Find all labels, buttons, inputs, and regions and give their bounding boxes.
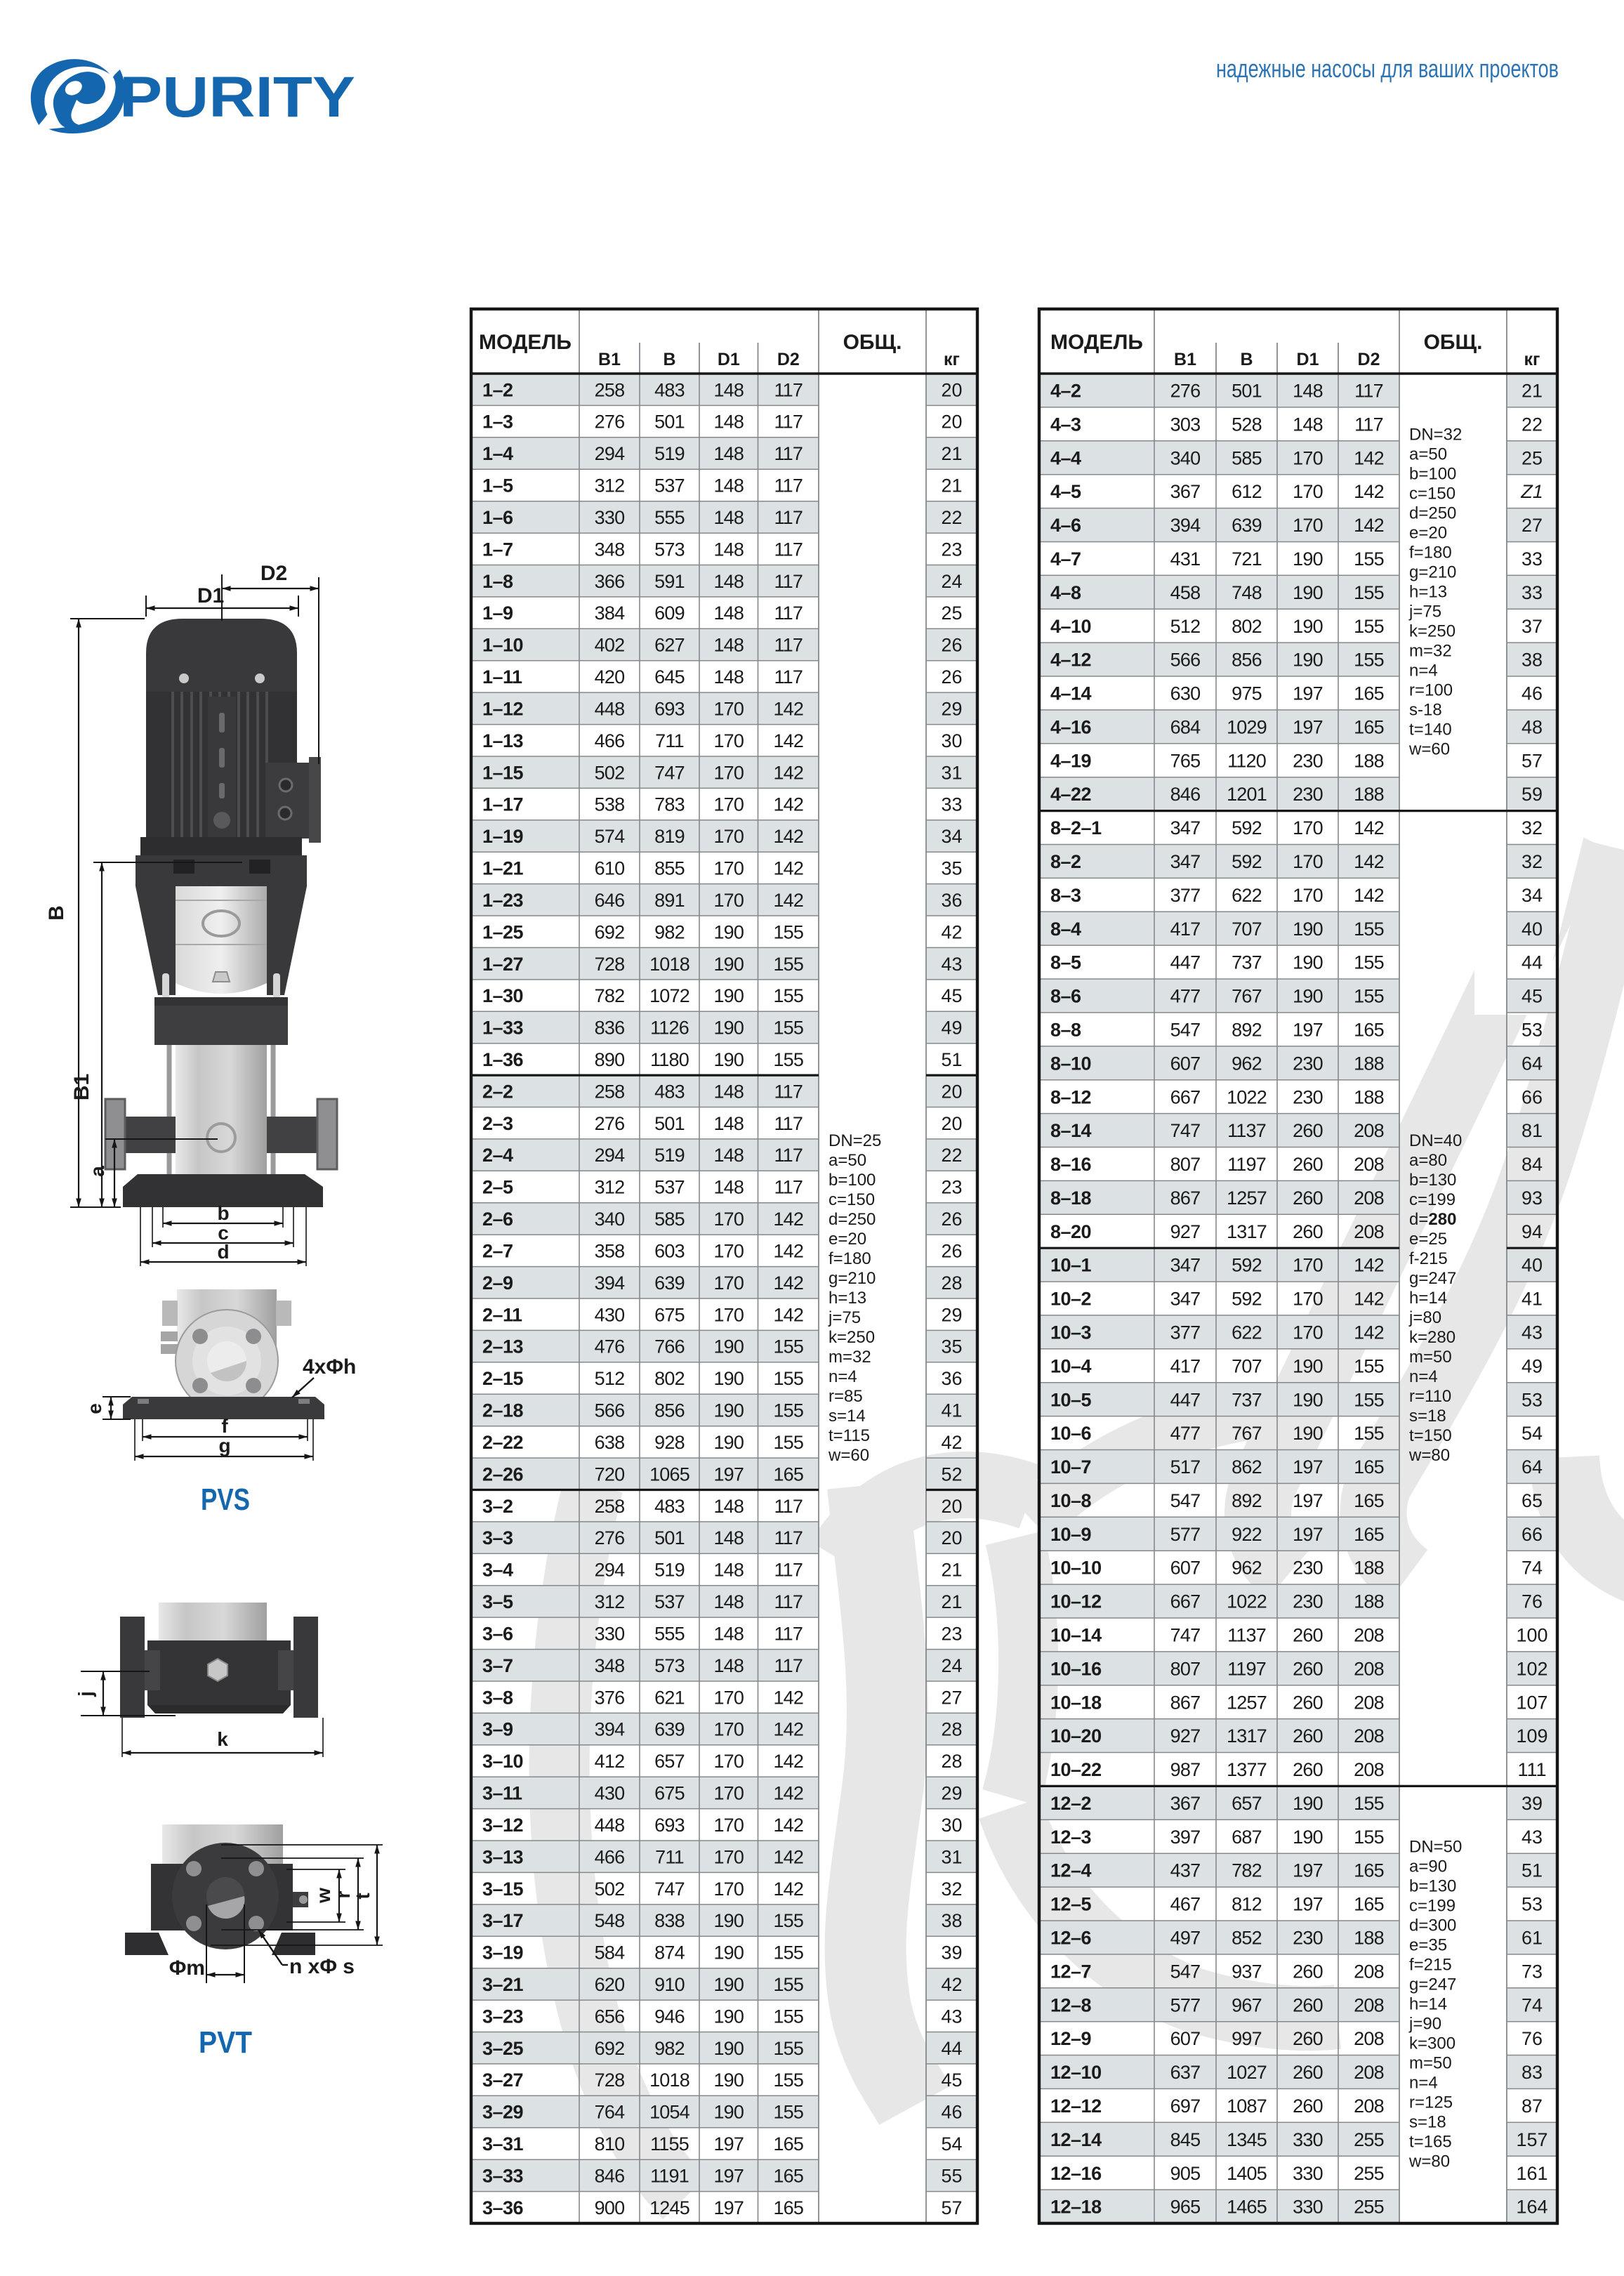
svg-text:t: t <box>352 1893 374 1899</box>
svg-text:10–6: 10–6 <box>1050 1423 1092 1444</box>
svg-text:n=4: n=4 <box>1409 1367 1438 1386</box>
svg-text:148: 148 <box>1293 381 1323 402</box>
svg-text:142: 142 <box>1354 1322 1384 1343</box>
svg-text:764: 764 <box>595 2102 625 2123</box>
svg-text:707: 707 <box>1232 1355 1262 1376</box>
svg-text:117: 117 <box>774 1527 803 1548</box>
svg-text:890: 890 <box>595 1049 625 1070</box>
svg-text:d: d <box>217 1241 229 1263</box>
svg-text:22: 22 <box>1521 414 1543 435</box>
svg-text:190: 190 <box>713 2038 744 2059</box>
svg-text:j=75: j=75 <box>1408 602 1441 621</box>
svg-text:a: a <box>86 1166 108 1177</box>
svg-text:B: B <box>663 350 675 369</box>
svg-text:2–18: 2–18 <box>482 1400 524 1421</box>
svg-text:142: 142 <box>773 890 803 911</box>
svg-text:12–14: 12–14 <box>1050 2129 1102 2150</box>
svg-text:412: 412 <box>595 1751 625 1772</box>
svg-text:190: 190 <box>713 1432 744 1453</box>
svg-text:PVT: PVT <box>199 2025 252 2060</box>
svg-text:1405: 1405 <box>1227 2163 1267 2184</box>
svg-text:148: 148 <box>713 1527 744 1548</box>
svg-text:8–12: 8–12 <box>1050 1086 1091 1107</box>
svg-text:657: 657 <box>654 1751 685 1772</box>
svg-text:c=199: c=199 <box>1409 1897 1455 1916</box>
svg-text:3–2: 3–2 <box>482 1496 513 1517</box>
svg-text:27: 27 <box>1521 515 1543 536</box>
svg-text:807: 807 <box>1170 1154 1201 1175</box>
svg-text:547: 547 <box>1170 1961 1201 1982</box>
svg-text:190: 190 <box>713 1400 744 1421</box>
svg-text:922: 922 <box>1232 1524 1262 1545</box>
svg-text:155: 155 <box>1354 548 1384 570</box>
svg-text:846: 846 <box>1170 784 1201 805</box>
svg-text:66: 66 <box>1521 1524 1543 1545</box>
svg-text:D2: D2 <box>777 350 800 369</box>
svg-text:190: 190 <box>713 1018 744 1039</box>
svg-text:1–27: 1–27 <box>482 954 523 975</box>
svg-text:737: 737 <box>1232 952 1262 973</box>
svg-text:170: 170 <box>713 1783 744 1804</box>
svg-text:592: 592 <box>1232 1255 1262 1276</box>
svg-text:892: 892 <box>1232 1490 1262 1511</box>
svg-text:f-215: f-215 <box>1409 1249 1448 1268</box>
svg-text:1–23: 1–23 <box>482 890 524 911</box>
svg-text:483: 483 <box>654 379 685 400</box>
svg-text:937: 937 <box>1232 1961 1262 1982</box>
svg-text:DN=40: DN=40 <box>1409 1131 1462 1150</box>
svg-text:31: 31 <box>941 1846 962 1867</box>
svg-text:728: 728 <box>595 954 625 975</box>
svg-text:142: 142 <box>773 794 803 815</box>
svg-text:627: 627 <box>654 635 685 656</box>
svg-text:155: 155 <box>1354 1827 1384 1848</box>
svg-text:208: 208 <box>1354 2096 1384 2117</box>
svg-text:12–3: 12–3 <box>1050 1827 1092 1848</box>
svg-text:b=100: b=100 <box>1409 464 1456 483</box>
svg-text:2–4: 2–4 <box>482 1145 513 1166</box>
svg-text:148: 148 <box>713 1113 744 1134</box>
svg-text:142: 142 <box>773 698 803 719</box>
svg-text:1–11: 1–11 <box>482 666 522 688</box>
svg-text:26: 26 <box>941 635 962 656</box>
svg-text:155: 155 <box>773 954 803 975</box>
svg-text:294: 294 <box>595 1145 625 1166</box>
svg-text:862: 862 <box>1232 1456 1262 1478</box>
svg-text:10–2: 10–2 <box>1050 1289 1091 1310</box>
svg-text:347: 347 <box>1170 817 1201 838</box>
svg-text:190: 190 <box>713 1368 744 1389</box>
svg-text:165: 165 <box>1354 1456 1384 1478</box>
svg-text:330: 330 <box>1293 2163 1323 2184</box>
svg-text:165: 165 <box>1354 717 1384 738</box>
svg-text:260: 260 <box>1293 1994 1323 2015</box>
svg-text:k: k <box>217 1728 228 1750</box>
svg-text:f=215: f=215 <box>1409 1956 1452 1975</box>
svg-text:3–6: 3–6 <box>482 1623 513 1644</box>
svg-text:782: 782 <box>595 985 625 1006</box>
svg-text:4xΦh: 4xΦh <box>303 1355 356 1379</box>
svg-text:574: 574 <box>595 826 625 847</box>
svg-text:a=90: a=90 <box>1409 1857 1447 1876</box>
svg-text:45: 45 <box>941 985 962 1006</box>
svg-text:802: 802 <box>654 1368 685 1389</box>
svg-text:10–4: 10–4 <box>1050 1355 1092 1376</box>
svg-text:4–3: 4–3 <box>1050 414 1081 435</box>
svg-text:607: 607 <box>1170 1053 1201 1074</box>
svg-text:g: g <box>218 1435 230 1456</box>
svg-text:477: 477 <box>1170 1423 1201 1444</box>
svg-text:21: 21 <box>1521 381 1543 402</box>
svg-text:358: 358 <box>595 1241 625 1262</box>
svg-text:437: 437 <box>1170 1860 1201 1881</box>
svg-text:512: 512 <box>1170 616 1201 637</box>
svg-text:2–6: 2–6 <box>482 1209 513 1230</box>
svg-text:51: 51 <box>1521 1860 1543 1881</box>
svg-text:148: 148 <box>713 1496 744 1517</box>
svg-text:46: 46 <box>1521 683 1543 704</box>
svg-text:584: 584 <box>595 1942 625 1963</box>
svg-text:10–18: 10–18 <box>1050 1692 1102 1713</box>
svg-text:208: 208 <box>1354 1188 1384 1209</box>
svg-text:997: 997 <box>1232 2028 1262 2049</box>
svg-text:946: 946 <box>654 2006 685 2027</box>
svg-text:927: 927 <box>1170 1725 1201 1747</box>
svg-text:48: 48 <box>1521 717 1543 738</box>
svg-text:466: 466 <box>595 730 625 751</box>
svg-text:3–19: 3–19 <box>482 1942 524 1963</box>
svg-text:3–21: 3–21 <box>482 1974 524 1995</box>
svg-text:766: 766 <box>654 1336 685 1357</box>
svg-text:4–2: 4–2 <box>1050 381 1081 402</box>
svg-text:639: 639 <box>654 1719 685 1740</box>
svg-text:53: 53 <box>1521 1020 1543 1041</box>
svg-text:43: 43 <box>941 2006 962 2027</box>
svg-text:117: 117 <box>1354 381 1383 402</box>
svg-text:n=4: n=4 <box>1409 2074 1438 2093</box>
svg-text:32: 32 <box>1521 817 1543 838</box>
svg-text:b: b <box>217 1202 229 1224</box>
svg-text:190: 190 <box>713 985 744 1006</box>
svg-text:49: 49 <box>1521 1355 1543 1376</box>
svg-text:1–13: 1–13 <box>482 730 524 751</box>
svg-text:197: 197 <box>1293 1860 1323 1881</box>
svg-text:s=14: s=14 <box>828 1407 866 1426</box>
svg-text:255: 255 <box>1354 2163 1384 2184</box>
svg-text:656: 656 <box>595 2006 625 2027</box>
svg-text:30: 30 <box>941 1815 962 1836</box>
svg-text:28: 28 <box>941 1272 962 1294</box>
svg-text:142: 142 <box>773 1783 803 1804</box>
svg-text:1027: 1027 <box>1227 2062 1267 2083</box>
svg-text:1–9: 1–9 <box>482 603 513 624</box>
svg-text:1465: 1465 <box>1227 2197 1267 2218</box>
svg-text:4–8: 4–8 <box>1050 582 1081 603</box>
svg-text:1137: 1137 <box>1227 1120 1266 1141</box>
svg-text:807: 807 <box>1170 1658 1201 1679</box>
svg-text:684: 684 <box>1170 717 1201 738</box>
svg-text:93: 93 <box>1521 1188 1543 1209</box>
svg-text:3–31: 3–31 <box>482 2133 524 2155</box>
svg-text:208: 208 <box>1354 1221 1384 1242</box>
svg-text:155: 155 <box>1354 919 1384 940</box>
svg-text:891: 891 <box>654 890 685 911</box>
svg-text:8–2–1: 8–2–1 <box>1050 817 1102 838</box>
svg-text:190: 190 <box>713 1974 744 1995</box>
svg-text:142: 142 <box>773 1815 803 1836</box>
svg-text:477: 477 <box>1170 986 1201 1007</box>
svg-text:155: 155 <box>773 1432 803 1453</box>
svg-text:54: 54 <box>941 2133 962 2155</box>
svg-text:170: 170 <box>1293 1322 1323 1343</box>
svg-text:d=300: d=300 <box>1409 1916 1456 1935</box>
svg-text:m=50: m=50 <box>1409 1348 1452 1367</box>
svg-text:d=280: d=280 <box>1409 1210 1456 1229</box>
svg-text:38: 38 <box>941 1910 962 1931</box>
svg-text:33: 33 <box>941 794 962 815</box>
svg-text:348: 348 <box>595 539 625 560</box>
svg-text:8–20: 8–20 <box>1050 1221 1091 1242</box>
svg-text:84: 84 <box>1521 1154 1543 1175</box>
svg-text:3–10: 3–10 <box>482 1751 523 1772</box>
svg-text:155: 155 <box>773 2038 803 2059</box>
svg-text:260: 260 <box>1293 1120 1323 1141</box>
svg-text:142: 142 <box>773 1241 803 1262</box>
svg-text:117: 117 <box>774 475 803 496</box>
svg-text:8–6: 8–6 <box>1050 986 1081 1007</box>
svg-text:476: 476 <box>595 1336 625 1357</box>
svg-text:D2: D2 <box>1358 350 1380 369</box>
svg-text:157: 157 <box>1516 2129 1547 2150</box>
svg-text:94: 94 <box>1521 1221 1543 1242</box>
svg-text:20: 20 <box>941 1081 962 1102</box>
svg-text:142: 142 <box>1354 1255 1384 1276</box>
svg-text:573: 573 <box>654 539 685 560</box>
svg-text:155: 155 <box>773 1974 803 1995</box>
svg-text:142: 142 <box>773 1209 803 1230</box>
svg-text:577: 577 <box>1170 1524 1201 1545</box>
svg-text:402: 402 <box>595 635 625 656</box>
svg-text:35: 35 <box>941 858 962 879</box>
svg-text:117: 117 <box>774 666 803 688</box>
svg-text:10–5: 10–5 <box>1050 1389 1092 1410</box>
svg-text:420: 420 <box>595 666 625 688</box>
svg-text:431: 431 <box>1170 548 1201 570</box>
svg-text:m=50: m=50 <box>1409 2054 1452 2073</box>
svg-text:384: 384 <box>595 603 625 624</box>
svg-text:845: 845 <box>1170 2129 1201 2150</box>
svg-text:4–6: 4–6 <box>1050 515 1081 536</box>
svg-text:538: 538 <box>595 794 625 815</box>
svg-text:537: 537 <box>654 475 685 496</box>
svg-text:610: 610 <box>595 858 625 879</box>
svg-text:e=20: e=20 <box>1409 523 1447 542</box>
svg-text:188: 188 <box>1354 1558 1384 1579</box>
svg-text:188: 188 <box>1354 750 1384 771</box>
svg-text:170: 170 <box>713 1719 744 1740</box>
svg-text:B: B <box>1240 350 1253 369</box>
svg-text:155: 155 <box>773 1049 803 1070</box>
svg-text:65: 65 <box>1521 1490 1543 1511</box>
svg-text:260: 260 <box>1293 1188 1323 1209</box>
svg-text:397: 397 <box>1170 1827 1201 1848</box>
svg-text:3–13: 3–13 <box>482 1846 524 1867</box>
svg-text:64: 64 <box>1521 1456 1543 1478</box>
svg-text:1257: 1257 <box>1227 1188 1267 1209</box>
svg-text:148: 148 <box>713 571 744 592</box>
svg-text:g=210: g=210 <box>828 1269 876 1288</box>
svg-text:1029: 1029 <box>1227 717 1267 738</box>
svg-text:230: 230 <box>1293 1591 1323 1612</box>
svg-text:117: 117 <box>774 1177 803 1198</box>
svg-text:h=13: h=13 <box>828 1289 866 1308</box>
svg-text:DN=25: DN=25 <box>828 1131 881 1150</box>
svg-text:1155: 1155 <box>650 2133 689 2155</box>
svg-text:208: 208 <box>1354 1658 1384 1679</box>
svg-text:34: 34 <box>941 826 962 847</box>
svg-text:483: 483 <box>654 1496 685 1517</box>
svg-text:170: 170 <box>713 698 744 719</box>
svg-text:1137: 1137 <box>1227 1625 1266 1646</box>
svg-text:208: 208 <box>1354 1625 1384 1646</box>
svg-text:260: 260 <box>1293 1221 1323 1242</box>
svg-text:276: 276 <box>595 1527 625 1548</box>
svg-text:j: j <box>74 1691 96 1697</box>
svg-text:109: 109 <box>1516 1725 1547 1747</box>
svg-text:МОДЕЛЬ: МОДЕЛЬ <box>479 331 572 354</box>
svg-text:B1: B1 <box>598 350 621 369</box>
svg-text:208: 208 <box>1354 1961 1384 1982</box>
svg-text:190: 190 <box>713 2070 744 2091</box>
svg-text:3–36: 3–36 <box>482 2197 524 2218</box>
svg-text:161: 161 <box>1516 2163 1547 2184</box>
svg-text:165: 165 <box>773 2166 803 2187</box>
svg-text:2–2: 2–2 <box>482 1081 513 1102</box>
svg-text:8–2: 8–2 <box>1050 851 1081 872</box>
svg-text:208: 208 <box>1354 2028 1384 2049</box>
svg-text:31: 31 <box>941 762 962 783</box>
svg-text:566: 566 <box>595 1400 625 1421</box>
svg-text:t=150: t=150 <box>1409 1426 1452 1445</box>
svg-text:3–25: 3–25 <box>482 2038 524 2059</box>
svg-text:417: 417 <box>1170 1355 1201 1376</box>
svg-text:566: 566 <box>1170 650 1201 671</box>
svg-text:190: 190 <box>713 1910 744 1931</box>
svg-text:197: 197 <box>1293 1894 1323 1915</box>
svg-text:83: 83 <box>1521 2062 1543 2083</box>
svg-text:170: 170 <box>713 1687 744 1708</box>
svg-text:728: 728 <box>595 2070 625 2091</box>
svg-text:41: 41 <box>1521 1289 1543 1310</box>
svg-text:43: 43 <box>1521 1322 1543 1343</box>
svg-text:44: 44 <box>1521 952 1543 973</box>
svg-text:2–11: 2–11 <box>482 1304 522 1325</box>
svg-text:33: 33 <box>1521 582 1543 603</box>
svg-text:148: 148 <box>713 412 744 433</box>
svg-text:4–5: 4–5 <box>1050 481 1081 502</box>
svg-text:148: 148 <box>713 666 744 688</box>
svg-text:117: 117 <box>774 539 803 560</box>
svg-text:962: 962 <box>1232 1053 1262 1074</box>
svg-text:B1: B1 <box>70 1074 93 1100</box>
svg-text:76: 76 <box>1521 2028 1543 2049</box>
svg-text:4–4: 4–4 <box>1050 447 1081 468</box>
svg-text:260: 260 <box>1293 1759 1323 1780</box>
svg-text:537: 537 <box>654 1177 685 1198</box>
svg-text:1345: 1345 <box>1227 2129 1267 2150</box>
svg-text:10–3: 10–3 <box>1050 1322 1092 1343</box>
svg-text:1–7: 1–7 <box>482 539 513 560</box>
svg-text:188: 188 <box>1354 1591 1384 1612</box>
svg-text:165: 165 <box>1354 1524 1384 1545</box>
svg-text:230: 230 <box>1293 750 1323 771</box>
svg-text:905: 905 <box>1170 2163 1201 2184</box>
svg-text:66: 66 <box>1521 1086 1543 1107</box>
svg-text:n=4: n=4 <box>828 1367 857 1386</box>
svg-text:m=32: m=32 <box>828 1348 871 1367</box>
svg-text:h=14: h=14 <box>1409 1289 1447 1308</box>
svg-text:148: 148 <box>713 1623 744 1644</box>
svg-text:548: 548 <box>595 1910 625 1931</box>
svg-text:170: 170 <box>1293 885 1323 906</box>
svg-text:142: 142 <box>1354 515 1384 536</box>
svg-text:42: 42 <box>941 921 962 942</box>
svg-text:b=130: b=130 <box>1409 1171 1456 1190</box>
svg-text:555: 555 <box>654 1623 685 1644</box>
svg-text:190: 190 <box>1293 582 1323 603</box>
svg-text:12–2: 12–2 <box>1050 1793 1091 1814</box>
svg-text:190: 190 <box>713 921 744 942</box>
svg-text:197: 197 <box>1293 717 1323 738</box>
svg-text:w=80: w=80 <box>1408 2152 1450 2171</box>
svg-text:29: 29 <box>941 698 962 719</box>
svg-text:43: 43 <box>1521 1827 1543 1848</box>
svg-text:42: 42 <box>941 1432 962 1453</box>
svg-text:975: 975 <box>1232 683 1262 704</box>
svg-text:621: 621 <box>654 1687 685 1708</box>
svg-text:44: 44 <box>941 2038 962 2059</box>
svg-text:276: 276 <box>1170 381 1201 402</box>
svg-text:142: 142 <box>773 858 803 879</box>
svg-text:190: 190 <box>713 954 744 975</box>
svg-text:519: 519 <box>654 1145 685 1166</box>
svg-text:190: 190 <box>713 1942 744 1963</box>
svg-text:856: 856 <box>654 1400 685 1421</box>
svg-text:497: 497 <box>1170 1928 1201 1949</box>
svg-text:3–12: 3–12 <box>482 1815 523 1836</box>
svg-text:8–8: 8–8 <box>1050 1020 1081 1041</box>
svg-text:3–17: 3–17 <box>482 1910 523 1931</box>
svg-text:w: w <box>312 1888 334 1904</box>
svg-text:394: 394 <box>595 1272 625 1294</box>
svg-text:260: 260 <box>1293 1625 1323 1646</box>
svg-text:1126: 1126 <box>650 1018 689 1039</box>
svg-text:1120: 1120 <box>1227 750 1266 771</box>
svg-text:547: 547 <box>1170 1020 1201 1041</box>
svg-text:39: 39 <box>941 1942 962 1963</box>
svg-text:188: 188 <box>1354 1928 1384 1949</box>
svg-text:747: 747 <box>1170 1120 1201 1141</box>
svg-text:f: f <box>221 1415 228 1437</box>
svg-text:3–23: 3–23 <box>482 2006 524 2027</box>
svg-text:230: 230 <box>1293 1053 1323 1074</box>
svg-text:967: 967 <box>1232 1994 1262 2015</box>
svg-text:148: 148 <box>713 1591 744 1612</box>
svg-text:819: 819 <box>654 826 685 847</box>
svg-text:501: 501 <box>654 412 685 433</box>
svg-text:810: 810 <box>595 2133 625 2155</box>
svg-text:622: 622 <box>1232 885 1262 906</box>
